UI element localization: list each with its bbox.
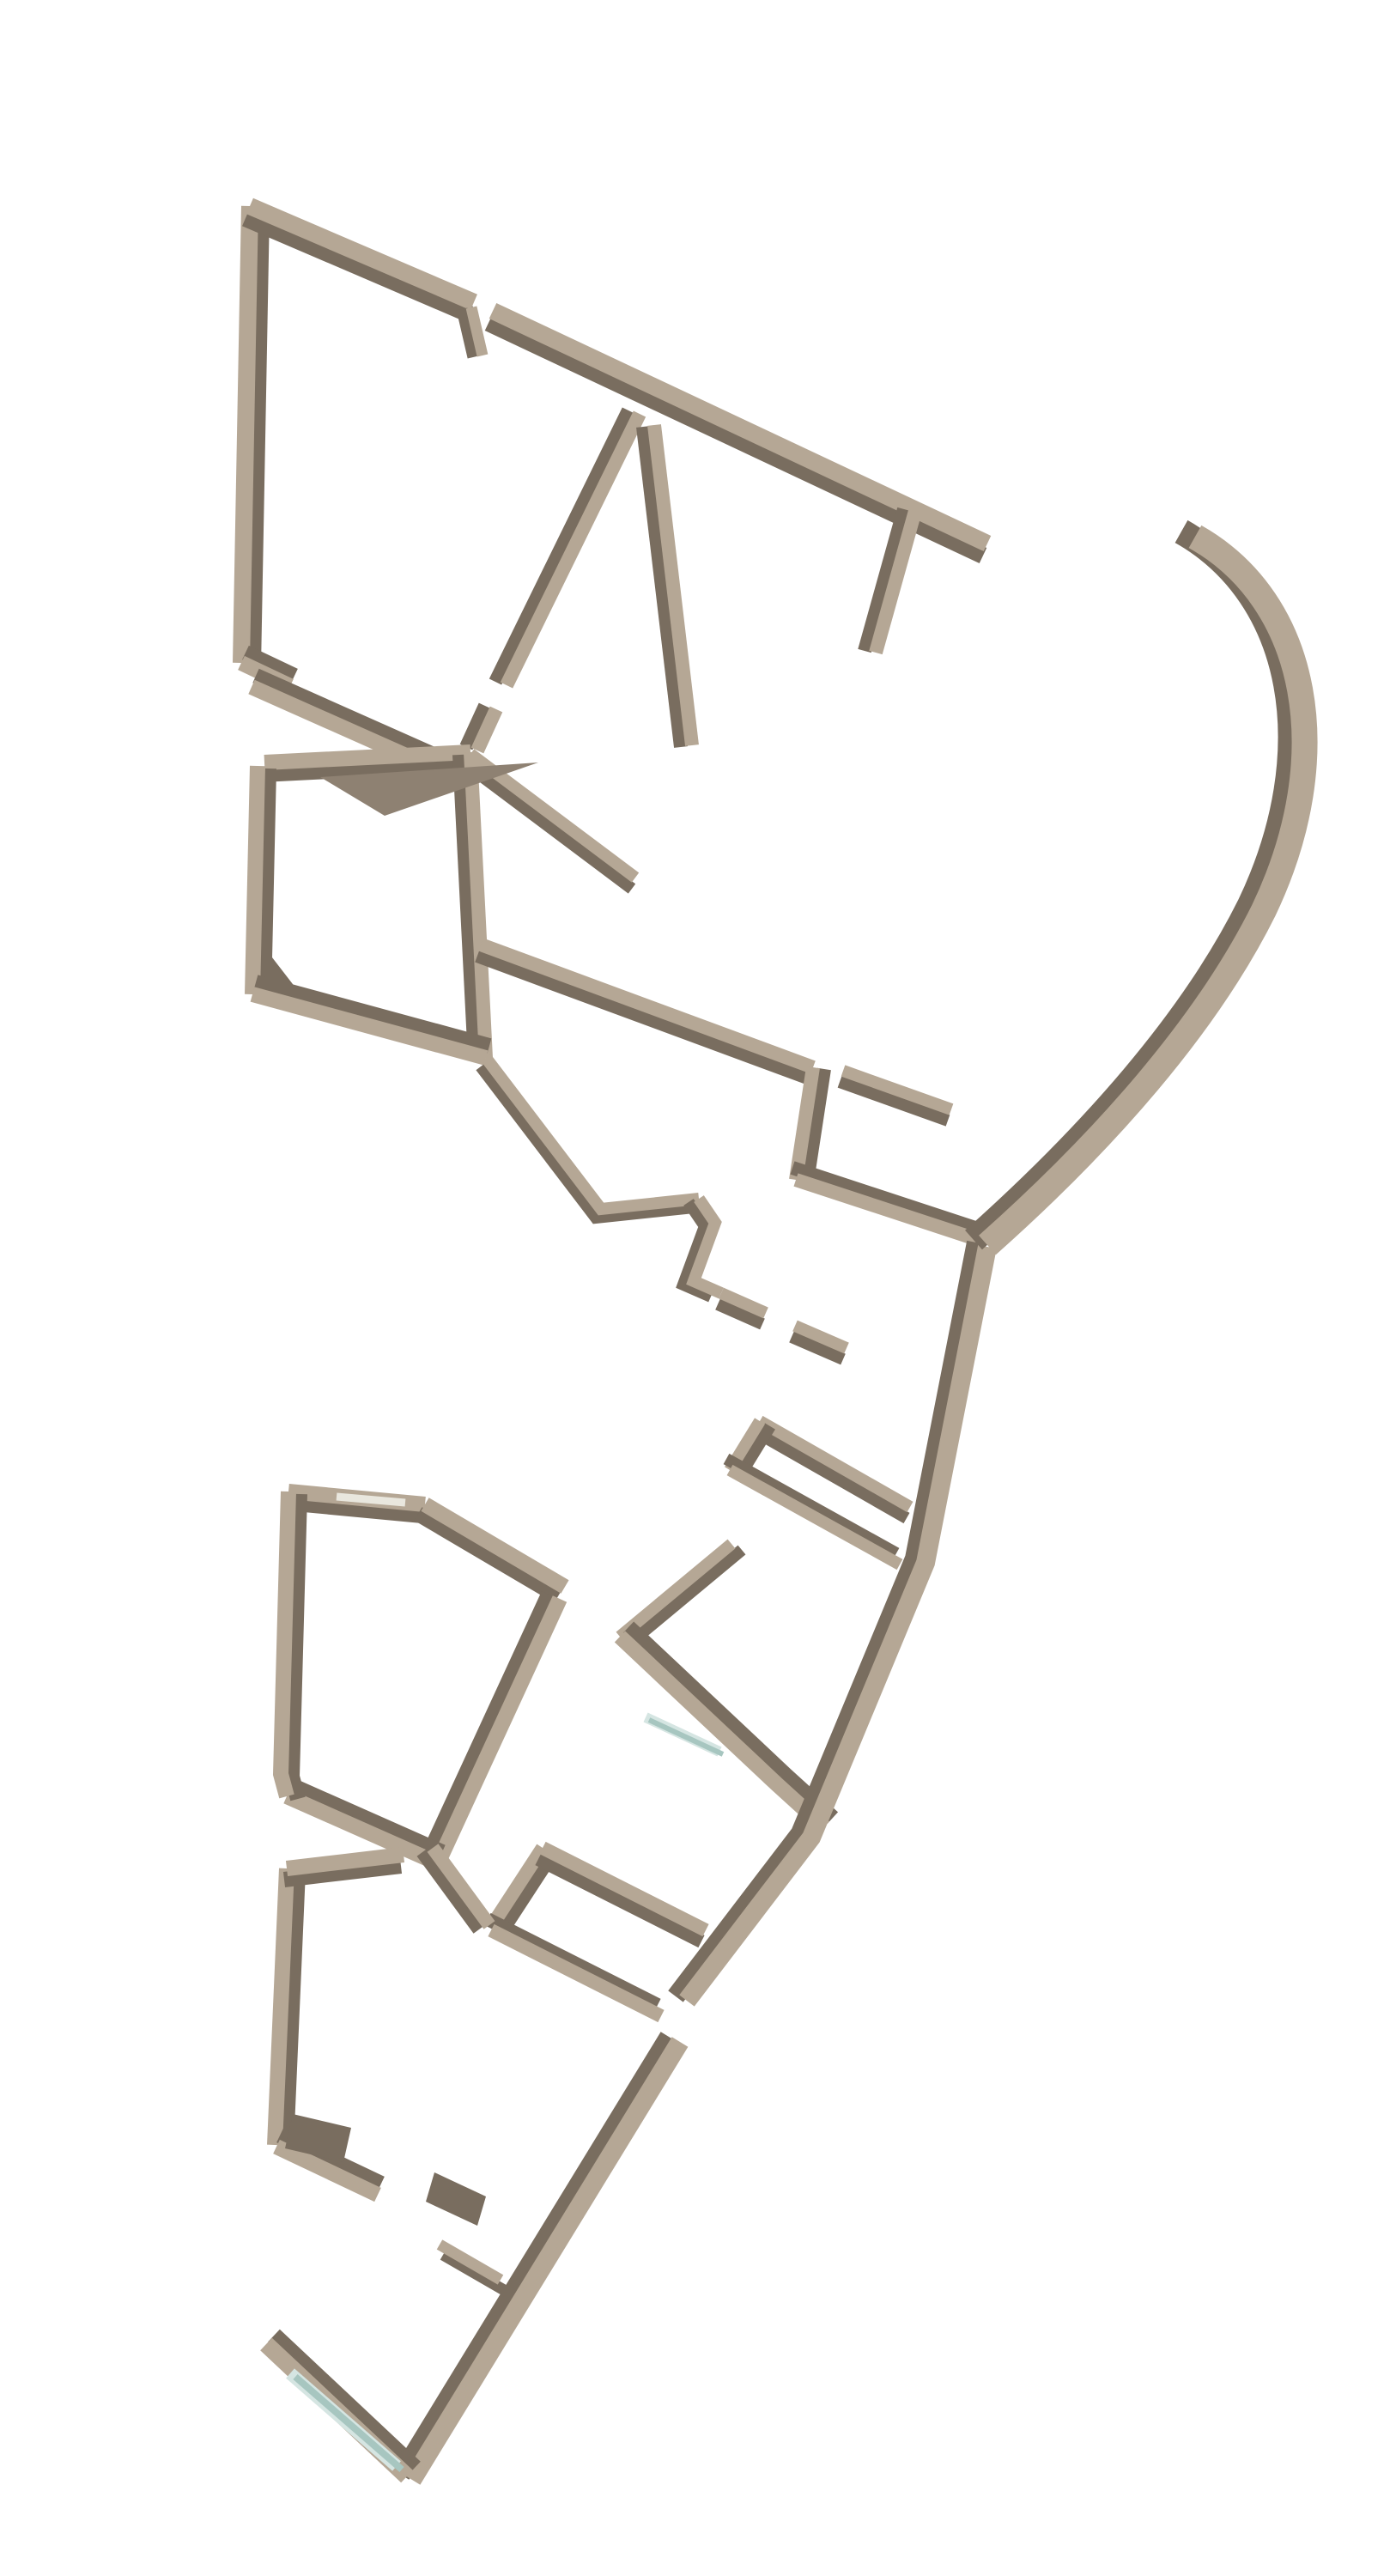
corridor-north-wall	[481, 1058, 699, 1218]
tip-window-glass	[290, 2373, 402, 2470]
interior-wall-east	[865, 509, 915, 653]
corridor-east-wall-b	[792, 1326, 847, 1359]
tip-top-east-wall	[422, 1848, 489, 1929]
interior-wall-west-return	[466, 706, 496, 750]
mid-diagonal-wall	[477, 945, 813, 1078]
mid-branch-wall	[840, 1071, 951, 1121]
corridor-east-wall-a	[718, 1293, 766, 1324]
interior-wall-west	[495, 410, 640, 685]
tip-left-wall	[275, 1868, 298, 2148]
pentagon2-northeast-wall	[418, 1504, 565, 1596]
floorplan-canvas	[0, 0, 1396, 2576]
room2-window-wall	[620, 1627, 833, 1827]
room3-south-wall	[488, 1919, 661, 2016]
roomA-top-west-wall	[246, 206, 474, 314]
tip-pillar-b	[426, 2172, 486, 2226]
room1-south-wall	[726, 1459, 900, 1564]
interior-wall-mid	[643, 425, 692, 747]
pentagon1-bottom-wall	[252, 982, 489, 1058]
corridor-jog-wall	[683, 1199, 721, 1297]
roomA-door-jamb	[462, 307, 483, 357]
curved-facade-wall	[974, 532, 1305, 1245]
tip-top-wall	[284, 1855, 404, 1880]
pentagon2-right-wall	[427, 1595, 560, 1863]
pentagon1-right-wall	[459, 752, 486, 1060]
roomA-left-wall	[241, 206, 261, 667]
midroom-south-wall	[792, 1168, 984, 1242]
pentagon2-left-wall	[281, 1492, 300, 1799]
room3-north-wall	[538, 1848, 706, 1941]
spine-door-return	[440, 2245, 504, 2290]
floorplan-svg	[0, 0, 1396, 2576]
